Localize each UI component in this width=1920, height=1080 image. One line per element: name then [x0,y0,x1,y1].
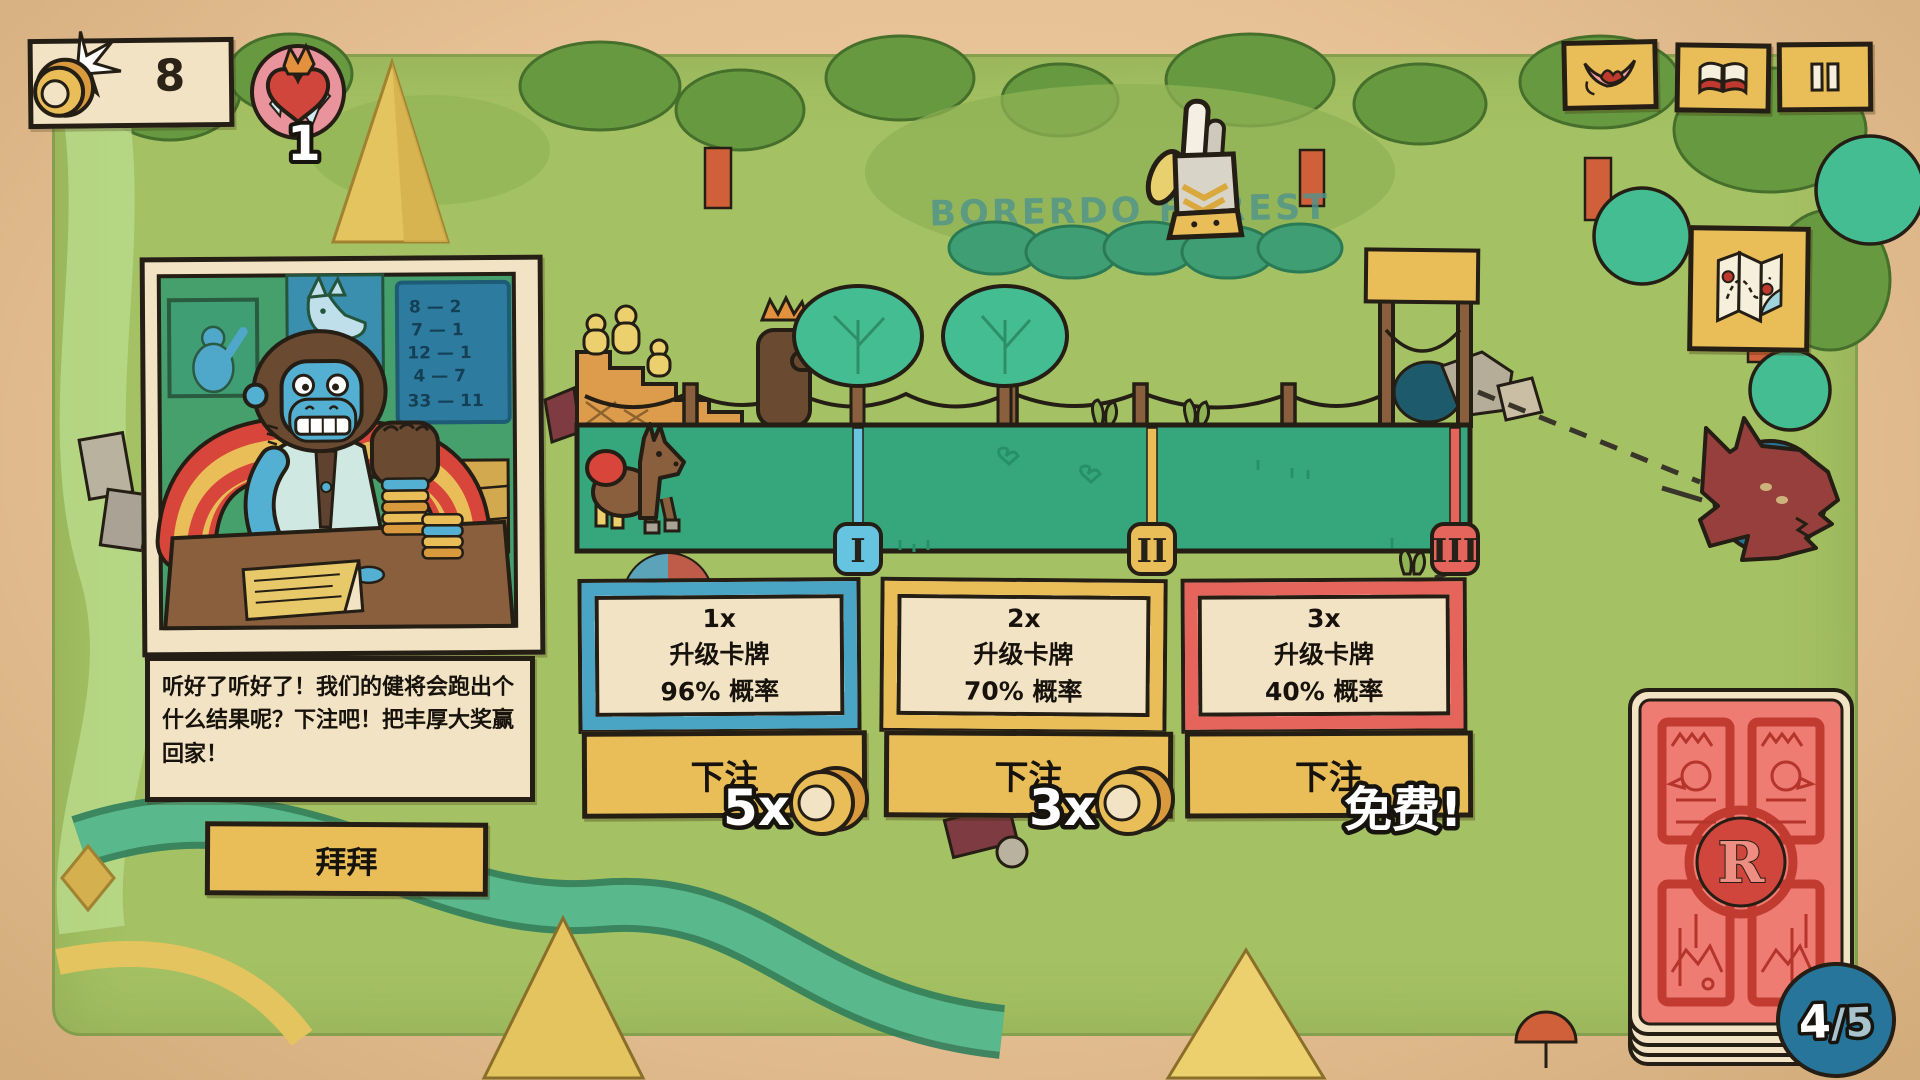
crown-count: 1 [287,116,320,172]
bet-option-3-card: 3x 升级卡牌 40% 概率 [1185,581,1464,729]
bet-1-reward: 升级卡牌 [669,637,769,674]
bet-2-chance: 70% 概率 [964,673,1083,711]
journal-button[interactable] [1675,42,1772,113]
svg-text:4/5: 4/5 [1798,993,1874,1050]
bet-2-button-label: 下注 [994,750,1062,799]
gorilla-bookie-art: 8 — 2 7 — 1 12 — 1 4 — 7 33 — 11 [159,274,516,628]
coin-counter: 8 [28,37,235,129]
bet-3-multiplier: 3x [1307,601,1341,638]
pause-icon [1803,57,1847,97]
hand-cursor-icon [1140,96,1270,246]
bet-option-1-card: 1x 升级卡牌 96% 概率 [581,581,857,730]
dialogue-box: 听好了听好了！我们的健将会跑出个什么结果呢？下注吧！把丰厚大奖赢回家！ [145,656,535,802]
bet-slip [243,561,362,620]
svg-text:12 — 1: 12 — 1 [407,343,471,363]
coin-icon [20,29,131,134]
dismiss-button[interactable]: 拜拜 [205,821,488,896]
bet-2-button[interactable]: 下注 [884,730,1173,819]
book-icon [1695,58,1752,99]
game-screen: BORERDO FOREST [0,0,1920,1080]
svg-text:7 — 1: 7 — 1 [411,320,464,340]
bet-2-reward: 升级卡牌 [973,637,1073,674]
bet-1-button[interactable]: 下注 [582,730,867,818]
crown-counter: 1 [248,42,348,142]
map-icon [1707,246,1790,331]
map-button[interactable] [1687,225,1811,353]
dialogue-text: 听好了听好了！我们的健将会跑出个什么结果呢？下注吧！把丰厚大奖赢回家！ [162,675,514,767]
bet-1-chance: 96% 概率 [660,673,779,710]
emote-button[interactable] [1561,39,1658,111]
bet-3-button[interactable]: 下注 [1185,730,1473,818]
bet-3-chance: 40% 概率 [1265,673,1384,710]
bet-1-multiplier: 1x [702,601,736,638]
svg-text:33 — 11: 33 — 11 [408,391,484,412]
bet-3-reward: 升级卡牌 [1274,637,1374,674]
bet-1-button-label: 下注 [690,750,758,799]
svg-text:4 — 7: 4 — 7 [413,366,466,386]
pause-button[interactable] [1777,42,1874,113]
odds-blackboard: 8 — 2 7 — 1 12 — 1 4 — 7 33 — 11 [397,282,510,423]
bet-option-2-card: 2x 升级卡牌 70% 概率 [883,581,1163,730]
bet-3-button-label: 下注 [1295,750,1363,799]
mouth-icon [1581,52,1640,97]
svg-text:8 — 2: 8 — 2 [409,297,462,317]
bet-2-multiplier: 2x [1007,601,1041,638]
coin-count: 8 [125,50,216,102]
dismiss-label: 拜拜 [315,836,377,881]
bookie-portrait: 8 — 2 7 — 1 12 — 1 4 — 7 33 — 11 [140,255,546,658]
deck-emblem: R [1718,830,1765,896]
